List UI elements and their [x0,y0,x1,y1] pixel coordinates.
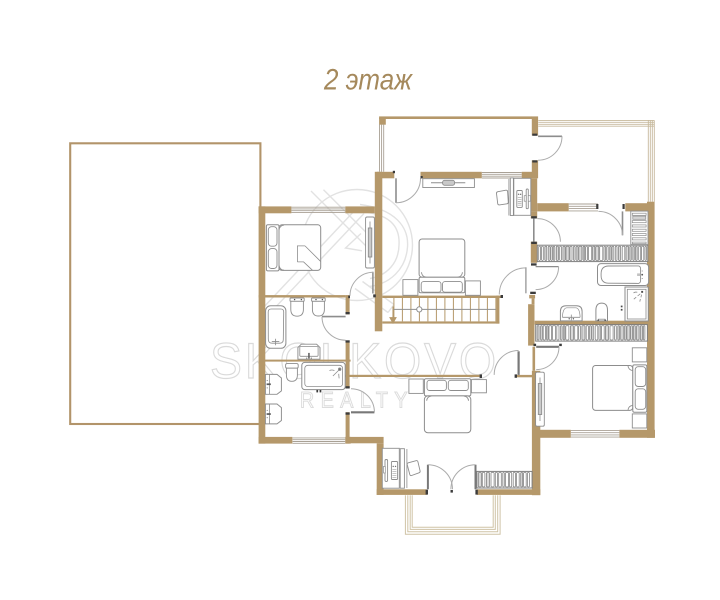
svg-text:2 этаж: 2 этаж [323,64,413,97]
